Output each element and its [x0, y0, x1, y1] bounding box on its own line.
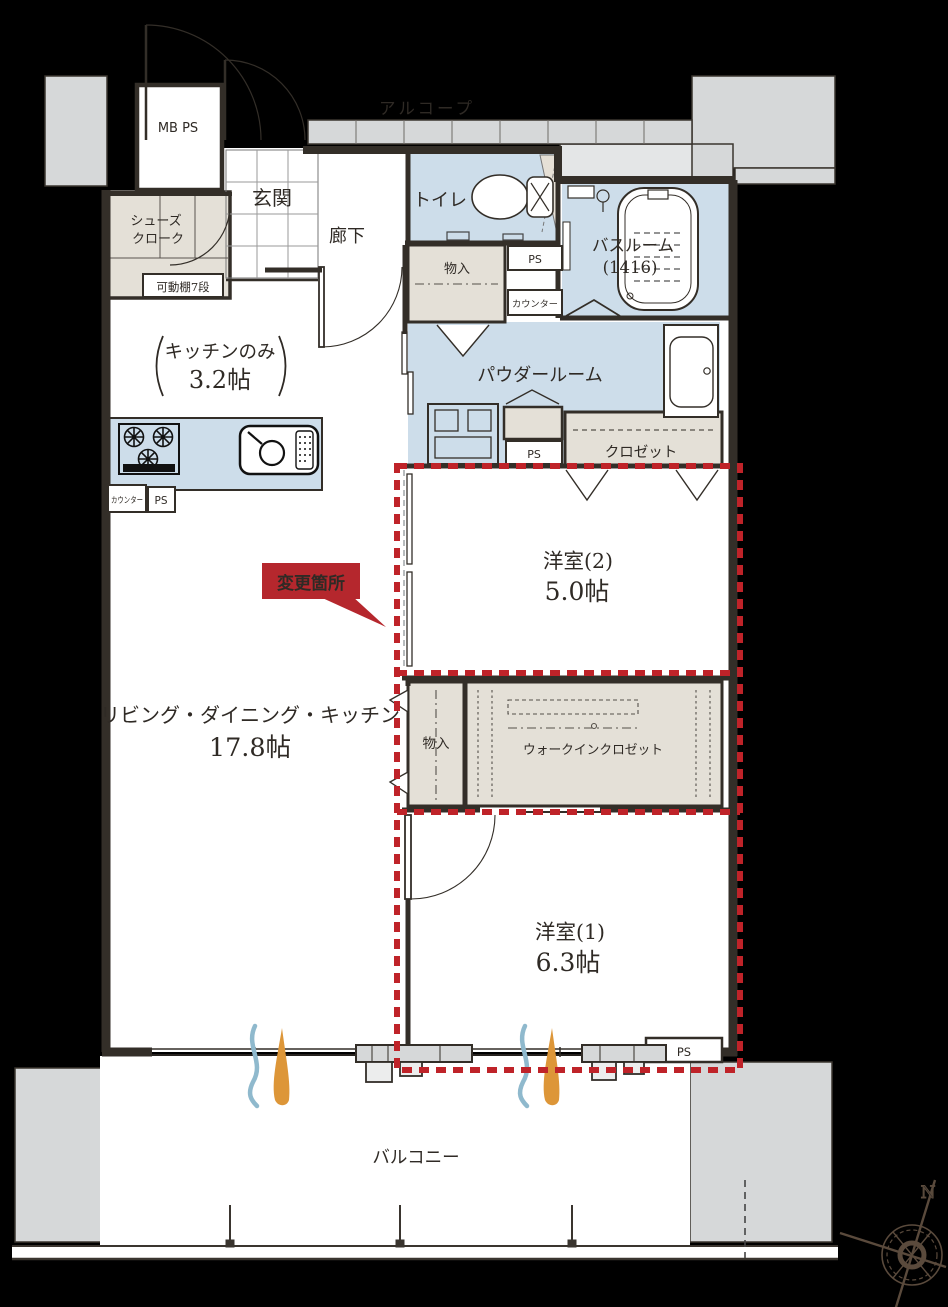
- ps-upper-label: PS: [528, 253, 542, 266]
- bath-mirror: [563, 222, 570, 270]
- closet-label: クロゼット: [605, 444, 678, 461]
- corridor-label: 廊下: [329, 226, 365, 247]
- balcony-door-unit-b: [582, 1045, 666, 1062]
- bedroom2-size-label: 5.0帖: [545, 577, 610, 606]
- living-size-label: 17.8帖: [209, 733, 291, 763]
- storage-upper-label: 物入: [444, 262, 470, 277]
- toilet-bowl: [472, 175, 528, 219]
- balcony-rail-band: [12, 1245, 838, 1259]
- counter-upper-label: カウンター: [512, 299, 558, 310]
- powder-storage-box: [504, 407, 562, 439]
- shoes-closet-label-2: クローク: [132, 232, 184, 247]
- wic-label: ウォークインクロゼット: [523, 743, 663, 758]
- powder-room-label: パウダールーム: [477, 365, 602, 386]
- kitchen-size-label: 3.2帖: [189, 366, 251, 394]
- bathroom-label-2: (1416): [603, 258, 658, 277]
- bedroom2-name-label: 洋室(2): [543, 549, 613, 573]
- powder-sliding-door-a: [402, 332, 407, 374]
- shoes-closet-label-1: シューズ: [130, 213, 181, 229]
- compass-north-label: N: [921, 1183, 936, 1203]
- meter-box-label: MB PS: [158, 121, 198, 136]
- stove-grill: [123, 464, 175, 472]
- pillar-top-left: [45, 76, 107, 186]
- genkan-label: 玄関: [252, 186, 292, 210]
- ps-kitchen-label: PS: [155, 495, 168, 507]
- kitchen-name-label: キッチンのみ: [164, 342, 275, 363]
- sink: [240, 426, 318, 474]
- powder-sliding-door-b: [408, 372, 413, 414]
- washing-machine-pan: [428, 404, 498, 464]
- ps-bedroom1-label: PS: [677, 1045, 691, 1059]
- bath-counter: [568, 186, 594, 198]
- ps-mid-label: PS: [527, 448, 541, 461]
- pillar-bottom-right: [690, 1062, 832, 1242]
- balcony-door-unit-a: [356, 1045, 472, 1062]
- bedroom1-name-label: 洋室(1): [535, 920, 605, 944]
- balcony-label: バルコニー: [372, 1148, 459, 1168]
- counter-kitchen-label: カウンター: [111, 496, 143, 506]
- movable-shelf-label: 可動棚7段: [156, 280, 210, 294]
- toilet-label: トイレ: [413, 190, 467, 211]
- slab-top-right: [735, 168, 835, 184]
- ldk-door-leaf: [319, 267, 324, 347]
- bedroom1-size-label: 6.3帖: [536, 948, 601, 977]
- floor-plan-page: 変更箇所 N アルコープ MB PS 玄関 シューズ クローク 可動棚7段 廊下…: [0, 0, 948, 1307]
- storage-wic-label: 物入: [423, 736, 450, 752]
- floor-plan-svg: 変更箇所 N アルコープ MB PS 玄関 シューズ クローク 可動棚7段 廊下…: [0, 0, 948, 1307]
- bathroom-label-1: バスルーム: [592, 236, 674, 255]
- meter-box: [137, 85, 222, 190]
- bedroom1-door-leaf: [405, 815, 411, 899]
- balcony-step-a1: [366, 1062, 392, 1082]
- bathtub-faucet: [648, 190, 668, 199]
- living-name-label: リビング・ダイニング・キッチン: [100, 703, 400, 727]
- alcove-label: アルコープ: [379, 99, 475, 118]
- change-area-label: 変更箇所: [277, 573, 345, 594]
